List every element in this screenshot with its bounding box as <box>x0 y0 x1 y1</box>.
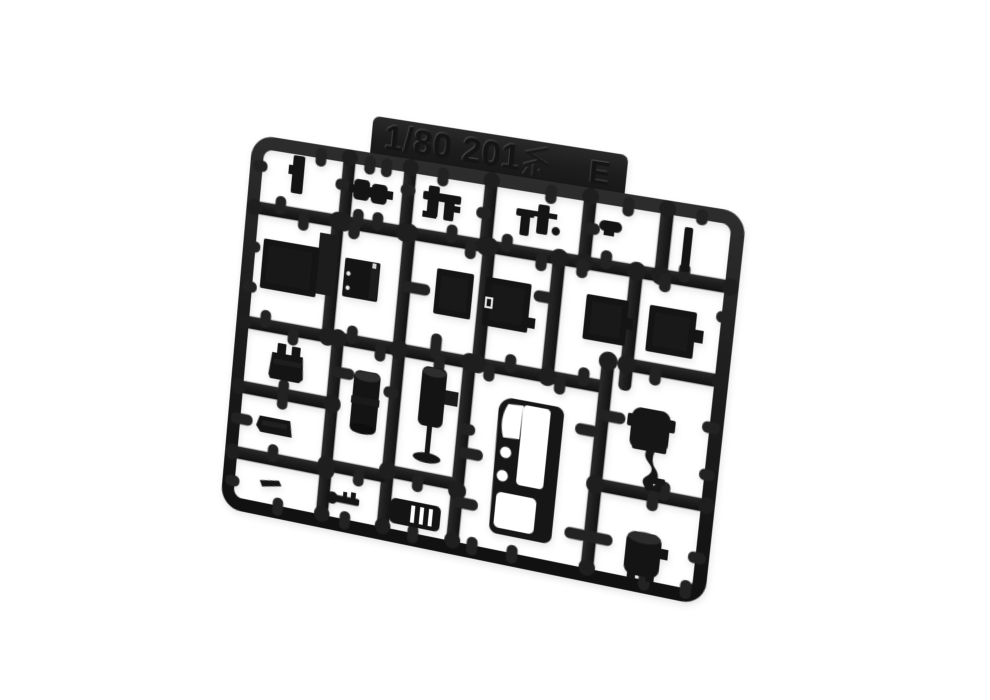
svg-text:E: E <box>587 153 613 193</box>
